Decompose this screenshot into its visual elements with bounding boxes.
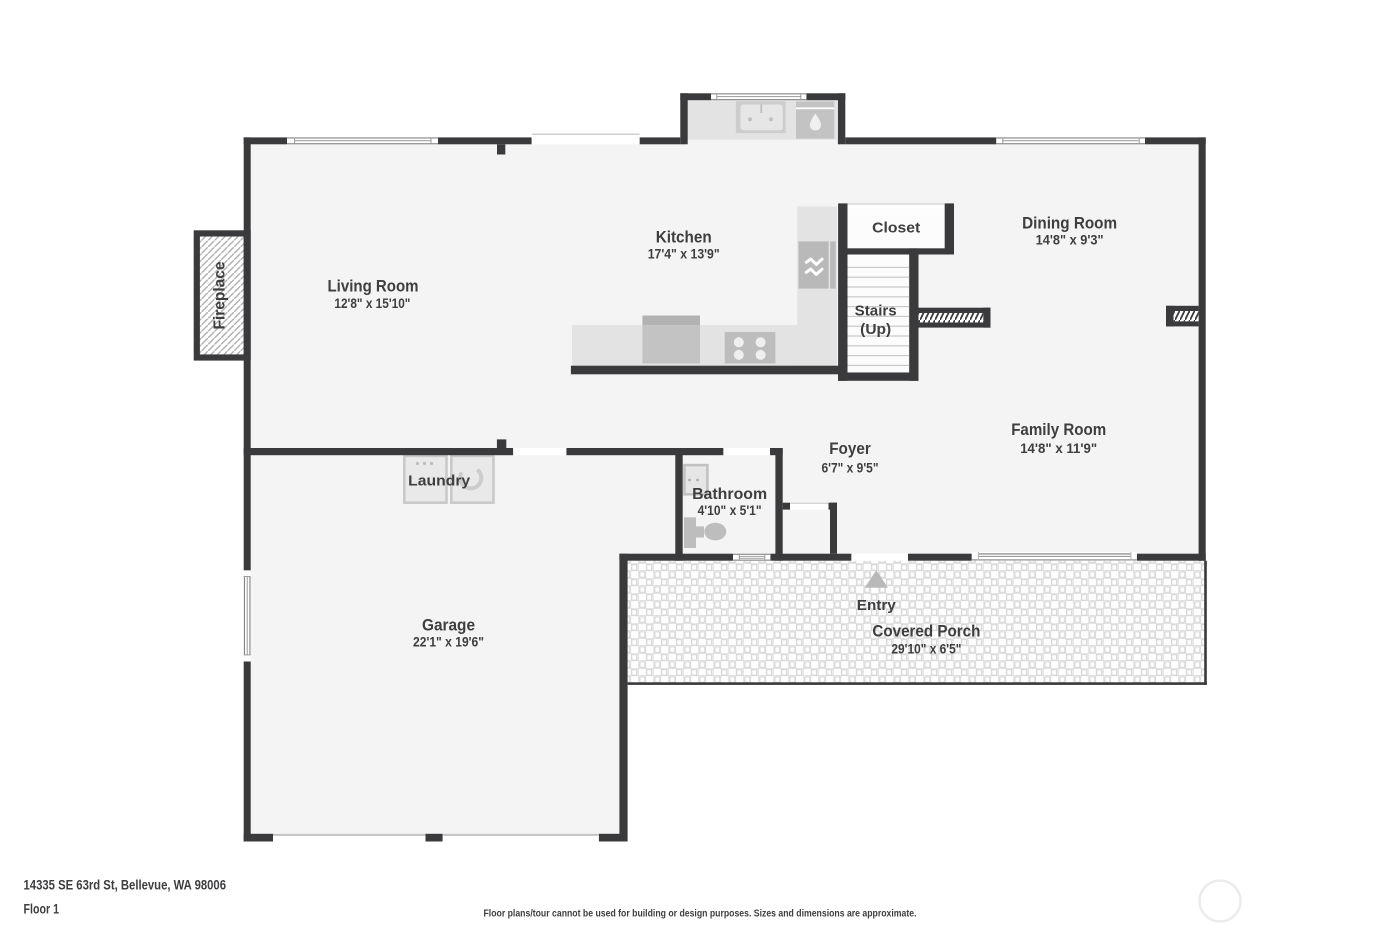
svg-text:Fireplace: Fireplace bbox=[212, 261, 229, 329]
svg-text:14'8" x 9'3": 14'8" x 9'3" bbox=[1036, 232, 1104, 247]
svg-text:Covered Porch: Covered Porch bbox=[872, 622, 980, 641]
svg-text:Laundry: Laundry bbox=[408, 473, 471, 490]
svg-text:Garage: Garage bbox=[422, 616, 475, 635]
svg-text:14'8" x 11'9": 14'8" x 11'9" bbox=[1020, 441, 1097, 456]
svg-text:Kitchen: Kitchen bbox=[656, 228, 712, 247]
svg-text:Entry: Entry bbox=[857, 597, 897, 614]
svg-text:Family Room: Family Room bbox=[1011, 420, 1106, 439]
svg-text:29'10" x 6'5": 29'10" x 6'5" bbox=[891, 642, 961, 657]
svg-text:6'7" x 9'5": 6'7" x 9'5" bbox=[822, 461, 879, 476]
svg-text:4'10" x 5'1": 4'10" x 5'1" bbox=[698, 503, 762, 518]
svg-text:Closet: Closet bbox=[872, 219, 920, 236]
svg-text:Stairs: Stairs bbox=[855, 302, 897, 319]
svg-text:17'4" x 13'9": 17'4" x 13'9" bbox=[648, 246, 720, 261]
svg-text:Floor plans/tour cannot be use: Floor plans/tour cannot be used for buil… bbox=[484, 909, 917, 920]
svg-text:Living Room: Living Room bbox=[328, 276, 419, 295]
svg-text:Bathroom: Bathroom bbox=[692, 486, 767, 503]
svg-text:22'1" x 19'6": 22'1" x 19'6" bbox=[413, 635, 484, 650]
svg-text:Floor 1: Floor 1 bbox=[24, 902, 60, 917]
svg-text:12'8" x 15'10": 12'8" x 15'10" bbox=[334, 296, 410, 311]
svg-text:Dining Room: Dining Room bbox=[1022, 213, 1117, 232]
svg-text:(Up): (Up) bbox=[860, 321, 891, 338]
svg-text:Foyer: Foyer bbox=[829, 439, 871, 458]
svg-text:14335 SE 63rd St, Bellevue, WA: 14335 SE 63rd St, Bellevue, WA 98006 bbox=[24, 878, 227, 893]
